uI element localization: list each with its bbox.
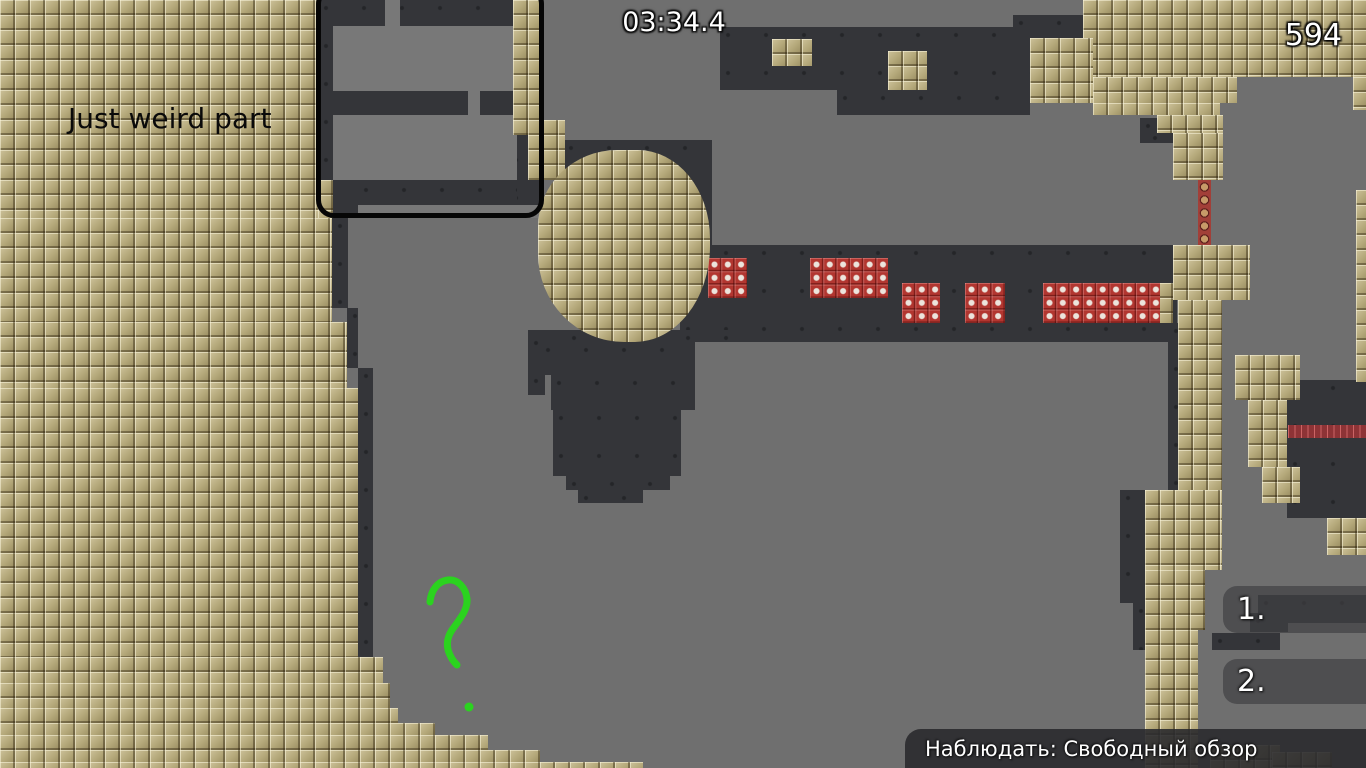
cave-dark-region <box>1212 633 1280 650</box>
brick-block <box>708 258 747 298</box>
tile-wall-region <box>1262 467 1300 503</box>
cave-dark-region <box>553 410 681 476</box>
cave-dark-region <box>332 218 348 308</box>
tile-blob-region <box>538 150 710 342</box>
cave-dark-region <box>1168 323 1178 490</box>
brick-block <box>965 283 1005 323</box>
brick-block <box>1043 283 1160 323</box>
tile-wall-region <box>0 683 390 708</box>
tile-wall-region <box>1173 245 1250 300</box>
cave-dark-region <box>358 368 373 657</box>
tile-wall-region <box>0 388 358 657</box>
map-note-text: Just weird part <box>68 102 272 135</box>
tile-wall-region <box>0 708 398 723</box>
tile-wall-region <box>1093 77 1237 103</box>
brick-block <box>902 283 940 323</box>
rank-row-1[interactable]: 1. <box>1223 586 1366 633</box>
hazard-strip-horizontal <box>1288 425 1366 438</box>
tile-wall-region <box>1173 133 1223 180</box>
cave-dark-region <box>1120 490 1145 603</box>
rank-row-2[interactable]: 2. <box>1223 659 1366 704</box>
cave-dark-region <box>578 490 643 503</box>
tile-wall-region <box>0 735 488 750</box>
cave-dark-region <box>551 375 695 410</box>
rank-1-label: 1. <box>1223 592 1266 627</box>
tile-wall-region <box>888 51 927 90</box>
tile-wall-region <box>1353 77 1366 110</box>
tile-wall-region <box>1158 283 1173 323</box>
tile-wall-region <box>1030 38 1093 103</box>
hazard-strip-vertical <box>1198 180 1211 245</box>
tile-wall-region <box>0 218 332 322</box>
cave-dark-region <box>347 308 358 368</box>
tile-wall-region <box>0 750 540 762</box>
spectate-mode-label: Наблюдать: Свободный обзор <box>905 737 1257 761</box>
spectate-mode-bar[interactable]: Наблюдать: Свободный обзор <box>905 729 1366 768</box>
game-viewport: 03:34.4 594 Just weird part 1. 2. Наблюд… <box>0 0 1366 768</box>
rank-2-label: 2. <box>1223 664 1266 699</box>
race-timer: 03:34.4 <box>546 7 802 38</box>
score-counter: 594 <box>1285 18 1342 53</box>
tile-wall-region <box>1157 115 1223 133</box>
cave-dark-region <box>540 342 695 375</box>
brick-block <box>810 258 888 298</box>
tile-wall-region <box>1356 190 1366 382</box>
cave-dark-region <box>1013 15 1083 38</box>
tile-wall-region <box>0 723 435 735</box>
tile-wall-region <box>1248 400 1287 467</box>
tile-wall-region <box>1093 103 1220 115</box>
tile-wall-region <box>0 657 383 683</box>
tile-wall-region <box>1235 355 1300 400</box>
tile-wall-region <box>0 322 347 388</box>
cave-dark-region <box>837 90 1030 115</box>
tile-wall-region <box>1145 490 1222 570</box>
tile-wall-region <box>1327 518 1366 555</box>
tile-wall-region <box>0 762 643 768</box>
annotation-rectangle <box>316 0 544 218</box>
cave-dark-region <box>566 476 670 490</box>
tile-wall-region <box>772 39 812 66</box>
tile-wall-region <box>1145 570 1205 630</box>
